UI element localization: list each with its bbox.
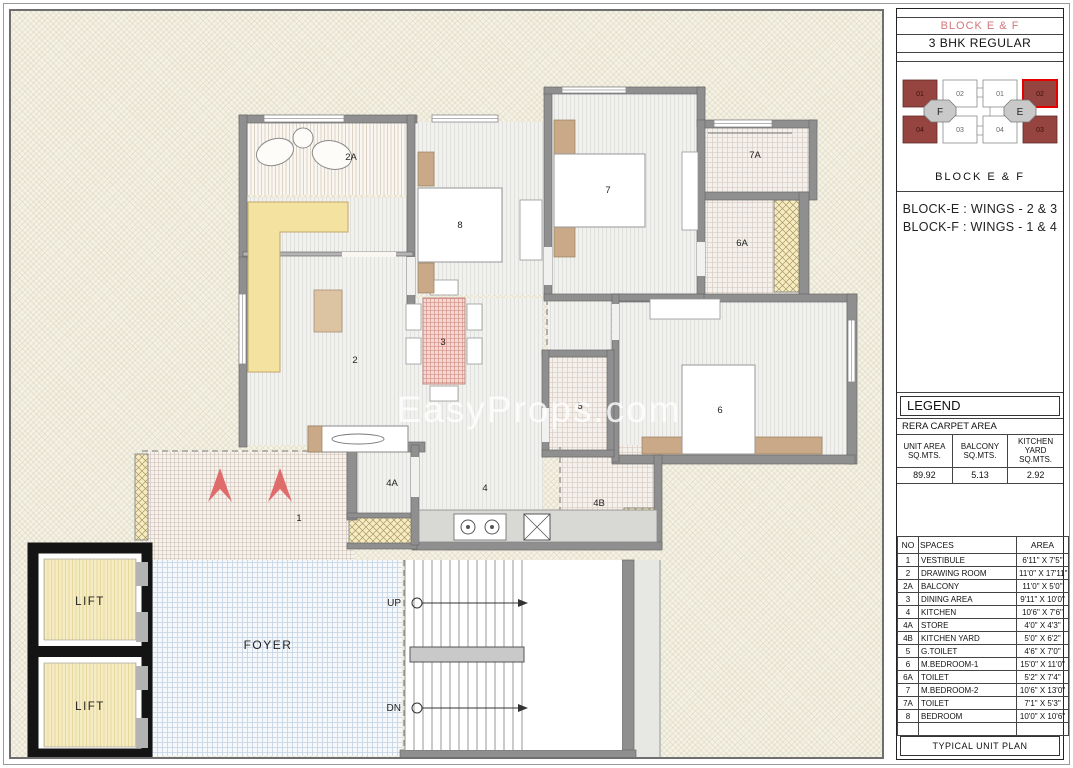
wings-note: BLOCK-E : WINGS - 2 & 3 BLOCK-F : WINGS … xyxy=(897,192,1063,244)
key-plan-diagram: 01 02 04 03 F 01 02 xyxy=(899,68,1061,164)
table-row: 1VESTIBULE6'11" X 7'5" xyxy=(898,554,1069,567)
dn-label: DN xyxy=(387,703,401,714)
lift-label-2: LIFT xyxy=(75,701,105,713)
table-row: 8BEDROOM10'0" X 10'6" xyxy=(898,710,1069,723)
up-label: UP xyxy=(387,598,401,609)
wings-note-line-e: BLOCK-E : WINGS - 2 & 3 xyxy=(897,202,1063,216)
drawing-title: TYPICAL UNIT PLAN xyxy=(900,736,1060,756)
kp-f-u04: 04 xyxy=(916,127,924,134)
room-label-4b: 4B xyxy=(593,498,605,509)
table-row: 4ASTORE4'0" X 4'3" xyxy=(898,619,1069,632)
key-plan: 01 02 04 03 F 01 02 xyxy=(897,62,1063,192)
kp-e-u02: 02 xyxy=(1036,91,1044,98)
panel-spacer-3 xyxy=(897,244,1063,393)
kp-f-u02: 02 xyxy=(956,91,964,98)
spaces-header-area: AREA xyxy=(1017,537,1069,554)
kp-e-u01: 01 xyxy=(996,91,1004,98)
table-row: 2DRAWING ROOM11'0" X 17'11" xyxy=(898,567,1069,580)
lift-label-1: LIFT xyxy=(75,596,105,608)
area-val-balcony: 5.13 xyxy=(952,467,1007,483)
key-plan-caption: BLOCK E & F xyxy=(897,171,1063,183)
spaces-table: NO SPACES AREA 1VESTIBULE6'11" X 7'5" 2D… xyxy=(897,536,1069,736)
room-label-1: 1 xyxy=(296,513,301,524)
room-label-4: 4 xyxy=(482,483,487,494)
spaces-header-row: NO SPACES AREA xyxy=(898,537,1069,554)
table-row: 7M.BEDROOM-210'6" X 13'0" xyxy=(898,684,1069,697)
foyer-label: FOYER xyxy=(244,638,293,652)
room-label-2: 2 xyxy=(352,355,357,366)
spaces-header-no: NO xyxy=(898,537,919,554)
room-label-2a: 2A xyxy=(345,152,357,163)
room-label-8: 8 xyxy=(457,220,462,231)
room-label-4a: 4A xyxy=(386,478,398,489)
title-block-panel: BLOCK E & F 3 BHK REGULAR 01 02 04 03 F xyxy=(896,8,1064,760)
panel-spacer-4 xyxy=(897,484,1063,536)
rera-area-table: UNIT AREA SQ.MTS. BALCONY SQ.MTS. KITCHE… xyxy=(897,435,1063,484)
room-label-7: 7 xyxy=(605,185,610,196)
table-row: 4BKITCHEN YARD5'0" X 6'2" xyxy=(898,632,1069,645)
block-title: BLOCK E & F xyxy=(897,18,1063,35)
table-row: 2ABALCONY11'0" X 5'0" xyxy=(898,580,1069,593)
floor-plan-drawing: 2A 8 7 7A 6A 2 3 5 6 4 4A 4B 1 LIFT LIFT… xyxy=(11,11,882,757)
area-val-unit: 89.92 xyxy=(897,467,952,483)
table-row: 4KITCHEN10'6" X 7'6" xyxy=(898,606,1069,619)
area-val-kitchen: 2.92 xyxy=(1008,467,1063,483)
watermark: EasyProps.com xyxy=(396,389,681,430)
drawing-sheet: 2A 8 7 7A 6A 2 3 5 6 4 4A 4B 1 LIFT LIFT… xyxy=(0,0,1073,768)
room-label-6a: 6A xyxy=(736,238,748,249)
staircase xyxy=(405,560,622,750)
panel-spacer-top xyxy=(897,9,1063,18)
kitchen-counter xyxy=(419,510,657,542)
wings-note-line-f: BLOCK-F : WINGS - 1 & 4 xyxy=(897,220,1063,234)
unit-type-title: 3 BHK REGULAR xyxy=(897,35,1063,53)
kp-e-u03: 03 xyxy=(1036,127,1044,134)
kp-e-u04: 04 xyxy=(996,127,1004,134)
table-row: 6M.BEDROOM-115'0" X 11'0" xyxy=(898,658,1069,671)
panel-spacer-2 xyxy=(897,53,1063,62)
entry-console xyxy=(308,426,408,452)
legend-subtitle: RERA CARPET AREA xyxy=(897,418,1063,435)
stair-landing xyxy=(410,647,524,662)
spaces-header-space: SPACES xyxy=(919,537,1017,554)
side-table xyxy=(314,290,342,332)
room-label-6: 6 xyxy=(717,405,722,416)
legend-title: LEGEND xyxy=(900,396,1060,416)
area-col-balcony: BALCONY SQ.MTS. xyxy=(952,435,1007,467)
table-row: 7ATOILET7'1" X 5'3" xyxy=(898,697,1069,710)
area-col-kitchen: KITCHEN YARD SQ.MTS. xyxy=(1008,435,1063,467)
table-row: 6ATOILET5'2" X 7'4" xyxy=(898,671,1069,684)
kp-f-u03: 03 xyxy=(956,127,964,134)
room-label-3: 3 xyxy=(440,337,445,348)
lift-block xyxy=(28,548,152,754)
table-row: 3DINING AREA9'11" X 10'0" xyxy=(898,593,1069,606)
kp-e-core: E xyxy=(1017,107,1024,118)
table-row: 5G.TOILET4'6" X 7'0" xyxy=(898,645,1069,658)
room-label-7a: 7A xyxy=(749,150,761,161)
area-col-unit: UNIT AREA SQ.MTS. xyxy=(897,435,952,467)
kp-f-u01: 01 xyxy=(916,91,924,98)
table-row-empty xyxy=(898,723,1069,736)
kp-f-core: F xyxy=(937,107,943,118)
floor-plan-panel: 2A 8 7 7A 6A 2 3 5 6 4 4A 4B 1 LIFT LIFT… xyxy=(9,9,884,759)
